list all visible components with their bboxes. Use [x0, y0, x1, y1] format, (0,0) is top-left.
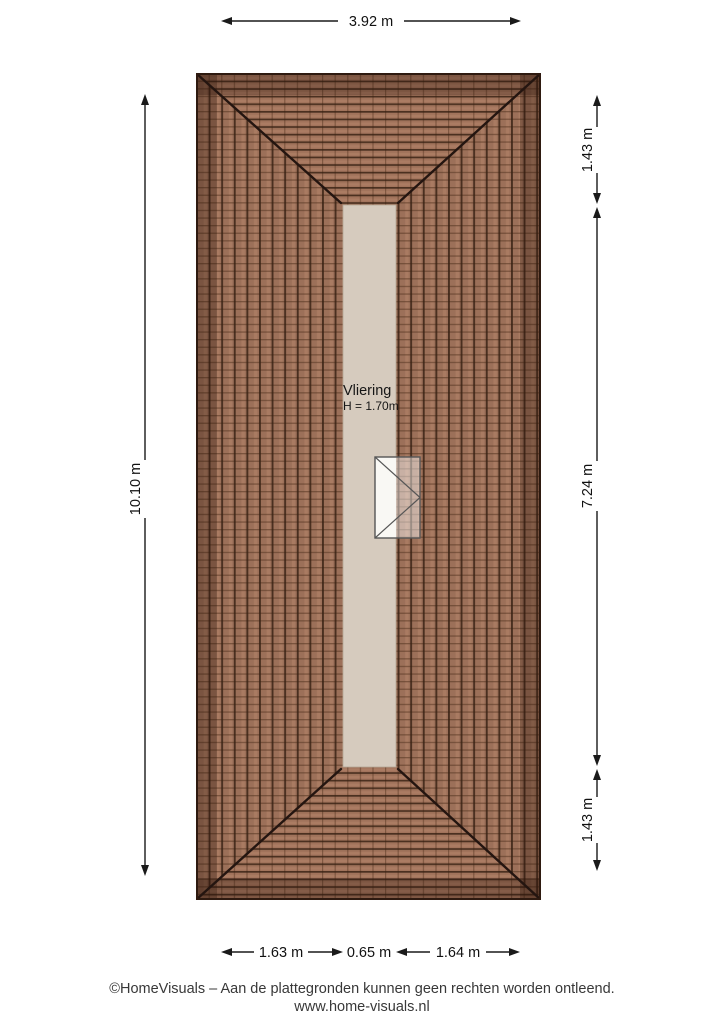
eaves-band-left — [196, 73, 217, 900]
skylight-window — [375, 457, 420, 538]
arrow-left-icon — [396, 948, 407, 956]
dim-label-right-top: 1.43 m — [580, 128, 596, 172]
skylight-pane-inner — [375, 457, 396, 538]
arrow-down-icon — [593, 193, 601, 204]
room-height-label: H = 1.70m — [343, 400, 399, 414]
dim-right-bottom: 1.43 m — [580, 769, 601, 871]
arrow-left-icon — [221, 948, 232, 956]
dim-bottom-middle: 0.65 m — [347, 945, 391, 961]
arrow-right-icon — [509, 948, 520, 956]
footer-disclaimer: ©HomeVisuals – Aan de plattegronden kunn… — [0, 980, 724, 998]
arrow-right-icon — [510, 17, 521, 25]
dim-label-bottom-right: 1.64 m — [436, 945, 480, 961]
dim-label-right-bottom: 1.43 m — [580, 798, 596, 842]
arrow-down-icon — [141, 865, 149, 876]
roof-plan-drawing — [196, 73, 541, 900]
eaves-band-bottom — [196, 878, 541, 900]
dim-label-right-middle: 7.24 m — [580, 464, 596, 508]
eaves-band-top — [196, 73, 541, 95]
arrow-down-icon — [593, 860, 601, 871]
dim-right-top: 1.43 m — [580, 95, 601, 204]
arrow-right-icon — [332, 948, 343, 956]
dim-label-bottom-middle: 0.65 m — [347, 945, 391, 961]
eaves-band-right — [520, 73, 541, 900]
roof-plan — [196, 73, 541, 900]
arrow-up-icon — [141, 94, 149, 105]
footer: ©HomeVisuals – Aan de plattegronden kunn… — [0, 980, 724, 1016]
floorplan-page: Vliering H = 1.70m 3.92 m 10.10 m 1.43 m — [0, 0, 724, 1024]
arrow-up-icon — [593, 769, 601, 780]
room-name: Vliering — [343, 383, 399, 400]
arrow-up-icon — [593, 95, 601, 106]
room-label: Vliering H = 1.70m — [343, 383, 399, 413]
skylight-pane-outer — [396, 457, 420, 538]
dim-top-width: 3.92 m — [221, 14, 521, 30]
arrow-up-icon — [593, 207, 601, 218]
dim-bottom-left: 1.63 m — [221, 945, 343, 961]
arrow-down-icon — [593, 755, 601, 766]
dim-label-left-height: 10.10 m — [128, 463, 144, 515]
dim-bottom-right: 1.64 m — [396, 945, 520, 961]
dim-left-height: 10.10 m — [128, 94, 149, 876]
dim-right-middle: 7.24 m — [580, 207, 601, 766]
dim-label-bottom-left: 1.63 m — [259, 945, 303, 961]
dim-label-top-width: 3.92 m — [349, 14, 393, 30]
arrow-left-icon — [221, 17, 232, 25]
footer-url: www.home-visuals.nl — [0, 998, 724, 1016]
